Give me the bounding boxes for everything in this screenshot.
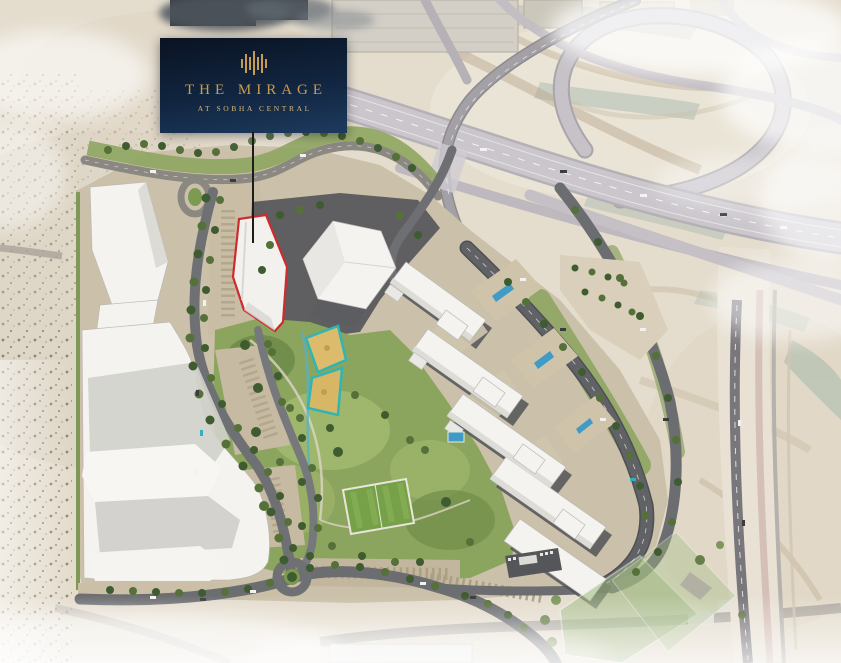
roundabout <box>277 562 307 592</box>
leader-line <box>252 132 254 243</box>
site-map-graphic <box>0 0 841 663</box>
project-title: THE MIRAGE <box>180 82 327 99</box>
sports-field <box>343 479 414 534</box>
project-label-card[interactable]: THE MIRAGE AT SOBHA CENTRAL <box>160 38 347 133</box>
sobha-towers-icon <box>241 50 267 76</box>
master-plan-aerial: THE MIRAGE AT SOBHA CENTRAL <box>0 0 841 663</box>
project-subtitle: AT SOBHA CENTRAL <box>195 104 312 113</box>
